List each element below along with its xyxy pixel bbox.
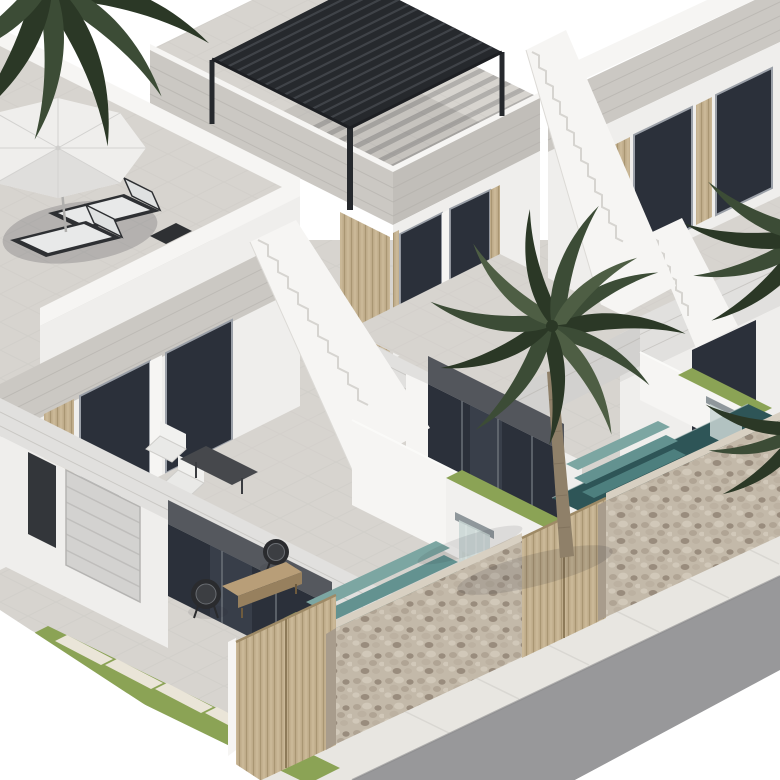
wood-pillar bbox=[696, 97, 712, 225]
render-canvas bbox=[0, 0, 780, 780]
entrance-door bbox=[28, 452, 56, 548]
gate-post bbox=[228, 638, 236, 756]
villa-render bbox=[0, 0, 780, 780]
